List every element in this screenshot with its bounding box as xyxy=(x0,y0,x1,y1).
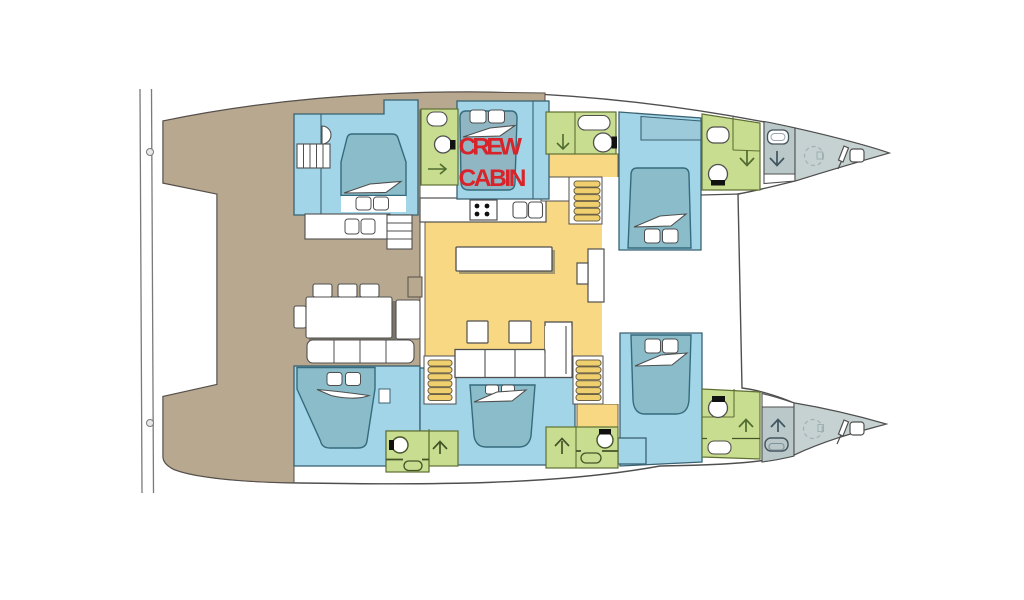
svg-text:CABIN: CABIN xyxy=(459,165,527,192)
svg-text:CREW: CREW xyxy=(459,134,523,161)
